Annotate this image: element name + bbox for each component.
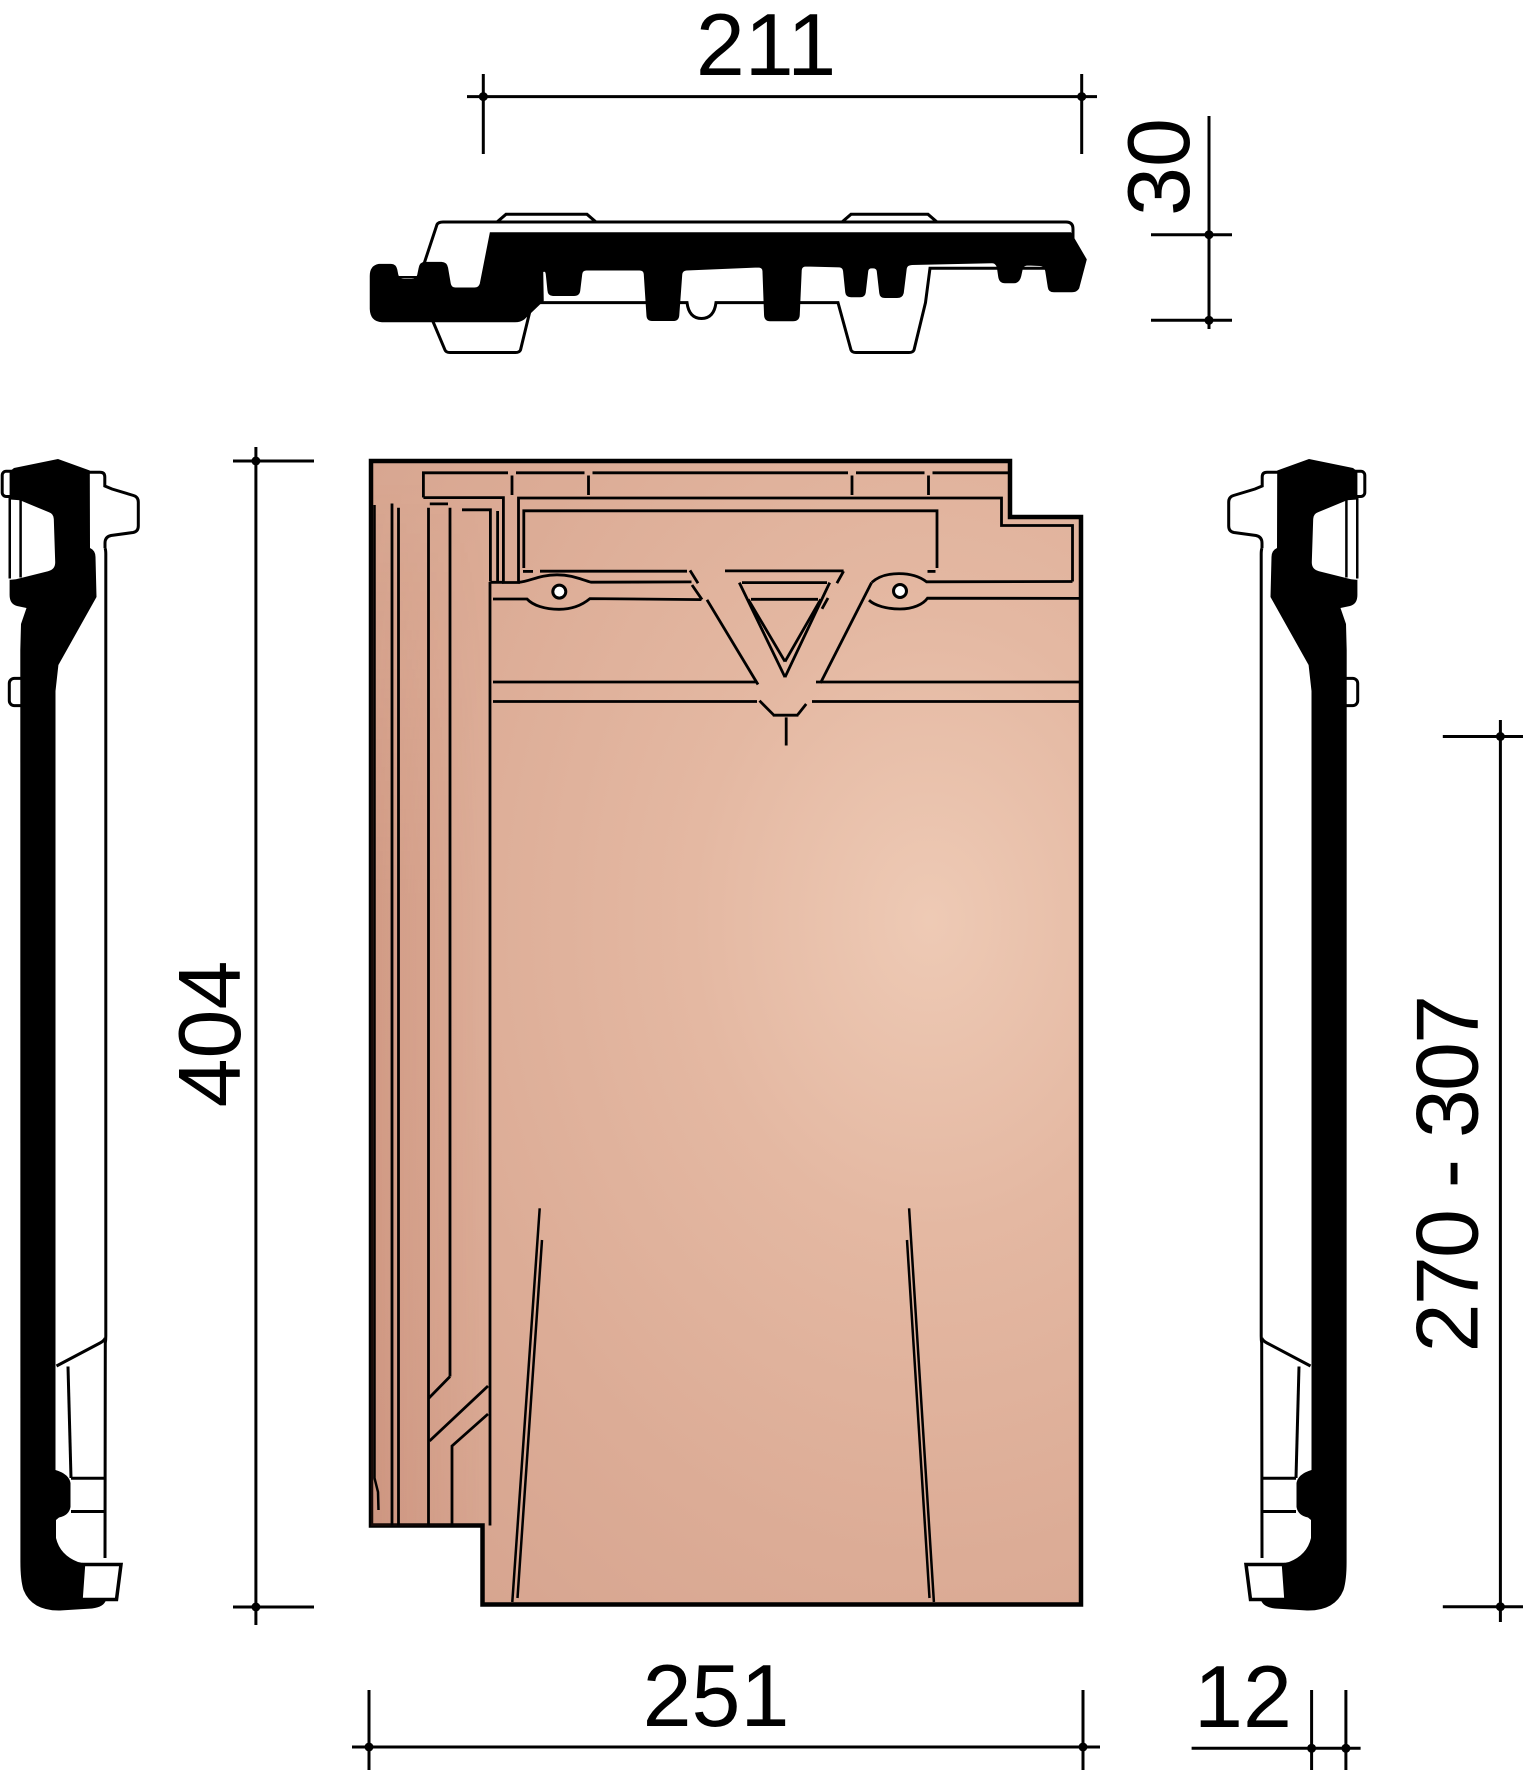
svg-text:270 - 307: 270 - 307 bbox=[1398, 997, 1497, 1353]
svg-text:211: 211 bbox=[696, 0, 836, 94]
svg-text:30: 30 bbox=[1109, 118, 1208, 216]
svg-text:404: 404 bbox=[160, 961, 259, 1108]
svg-text:251: 251 bbox=[643, 1646, 790, 1745]
svg-text:12: 12 bbox=[1194, 1647, 1292, 1746]
